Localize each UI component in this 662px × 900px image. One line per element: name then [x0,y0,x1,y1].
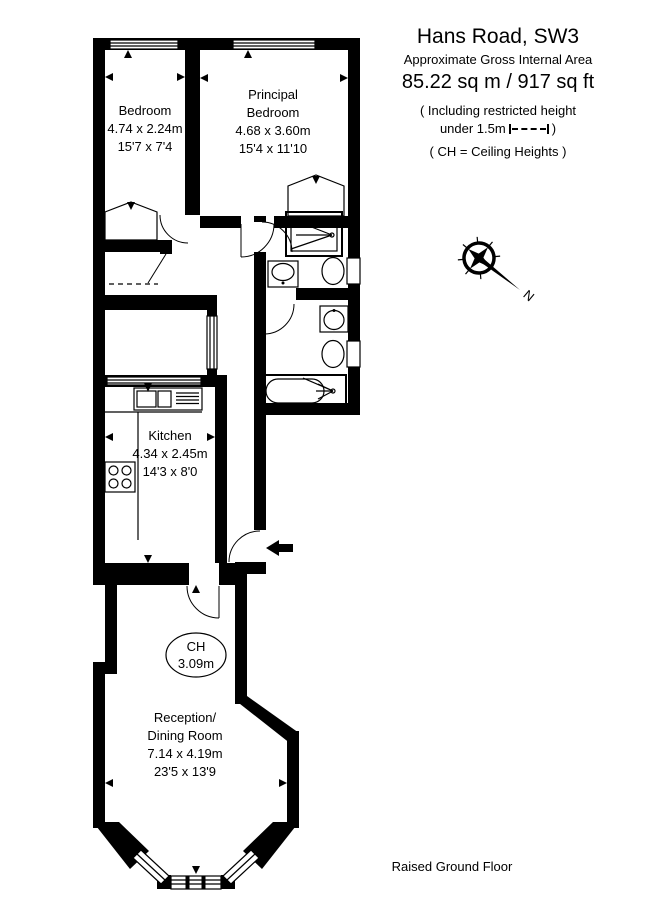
bay-window-left [133,850,169,884]
reception-door-arc [187,586,219,618]
ceiling-height-value: 3.09m [178,656,214,671]
kitchen-metric: 4.34 x 2.45m [132,446,207,461]
bedroom-door-arc [160,215,188,243]
bedroom-window [110,40,178,49]
kitchen-label: Kitchen [148,428,191,443]
hob-icon [105,462,135,492]
ceiling-height-badge: CH 3.09m [166,633,226,677]
wardrobe-icon-bedroom [105,202,157,240]
basin-icon-ensuite [268,261,298,287]
bathtub-icon [262,375,346,407]
closet-door-leaf [148,254,166,283]
compass-north-label: N [520,287,537,305]
reception-metric: 7.14 x 4.19m [147,746,222,761]
walls [93,38,360,889]
kitchen-imperial: 14'3 x 8'0 [143,464,198,479]
toilet-icon-ensuite [322,258,360,285]
bathroom-door-arc [264,304,294,334]
principal-bedroom-window [233,40,315,49]
reception-imperial: 23'5 x 13'9 [154,764,216,779]
reception-label-2: Dining Room [147,728,222,743]
basin-icon-bathroom [320,306,348,332]
bedroom-metric: 4.74 x 2.24m [107,121,182,136]
floor-plan: N Bedroom 4.74 x 2.24m 15'7 x 7'4 Princi… [0,0,662,900]
corridor-window [207,316,217,369]
kitchen-sink-icon [134,383,202,410]
kitchen-window [107,377,201,385]
bedroom-imperial: 15'7 x 7'4 [118,139,173,154]
principal-bedroom-label-1: Principal [248,87,298,102]
principal-bedroom-imperial: 15'4 x 11'10 [239,141,307,156]
entrance-arrow-icon [266,540,293,556]
bedroom-label: Bedroom [119,103,172,118]
ceiling-height-label: CH [187,639,206,654]
principal-bedroom-label-2: Bedroom [247,105,300,120]
reception-label-1: Reception/ [154,710,217,725]
bay-window-bottom [171,876,221,889]
floorplan-page: Hans Road, SW3 Approximate Gross Interna… [0,0,662,900]
principal-bedroom-metric: 4.68 x 3.60m [235,123,310,138]
wardrobe-icon-principal [288,175,344,216]
compass-icon: N [449,228,537,304]
toilet-icon-bathroom [322,341,360,368]
entry-door-arc [229,531,260,562]
bay-window-right [223,850,259,884]
